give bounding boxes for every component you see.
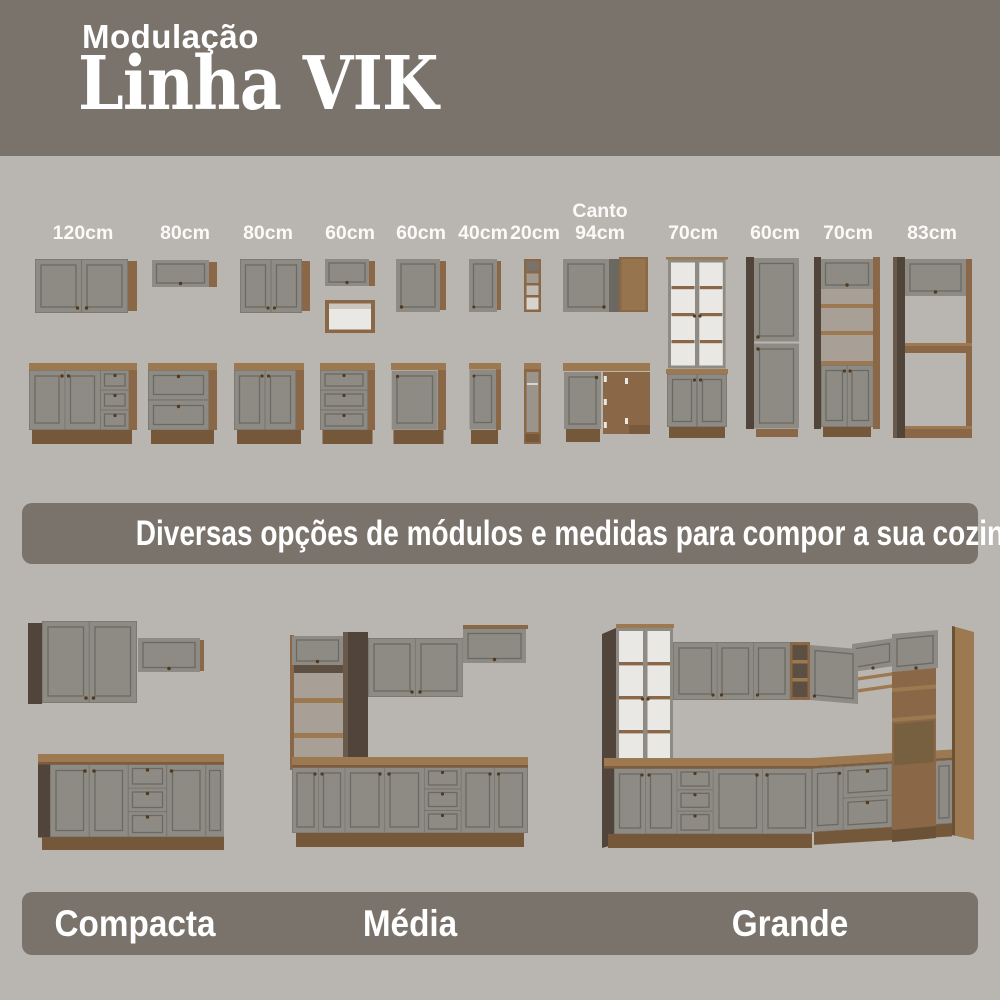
module-80cm-drawer-base-illustration xyxy=(148,363,217,444)
module-83cm-open-tower-illustration xyxy=(893,257,972,438)
module-label-60cm-a: 60cm xyxy=(325,222,375,244)
module-120cm-base-cabinet-illustration xyxy=(29,363,137,444)
module-label-canto-94cm: Canto 94cm xyxy=(572,200,627,244)
module-60cm-wall-cabinet-illustration xyxy=(396,259,446,312)
page: Modulação Linha VIK 120cm 80cm 80cm 60cm… xyxy=(0,0,1000,1000)
module-label-20cm: 20cm xyxy=(510,222,560,244)
module-20cm-rail-base-illustration xyxy=(524,363,541,444)
module-80cm-flip-wall-cabinet-illustration xyxy=(152,260,217,288)
module-60cm-drawer-base-illustration xyxy=(320,363,375,444)
module-label-80cm-a: 80cm xyxy=(160,222,210,244)
kitchen-compacta-illustration xyxy=(28,615,252,855)
kitchen-media-illustration xyxy=(290,612,566,855)
layout-label-compacta: Compacta xyxy=(54,892,215,955)
layout-label-grande: Grande xyxy=(732,892,849,955)
kitchen-layouts-section xyxy=(0,565,1000,892)
module-label-60cm-c: 60cm xyxy=(750,222,800,244)
module-label-canto-prefix: Canto xyxy=(572,200,627,222)
module-60cm-flip-wall-cabinet-illustration xyxy=(325,259,375,287)
banner-text: Diversas opções de módulos e medidas par… xyxy=(136,503,1000,564)
kitchen-grande-illustration xyxy=(600,612,996,874)
module-label-83cm: 83cm xyxy=(907,222,957,244)
module-60cm-open-niche-illustration xyxy=(325,300,375,333)
module-70cm-glass-tall-cabinet-illustration xyxy=(666,257,728,438)
module-60cm-door-base-illustration xyxy=(391,363,446,444)
footer-band: Compacta Média Grande xyxy=(22,892,978,955)
module-20cm-shelf-wall-illustration xyxy=(524,259,541,312)
module-label-canto-size: 94cm xyxy=(572,222,627,244)
module-label-120cm: 120cm xyxy=(53,222,114,244)
module-60cm-pantry-tall-cabinet-illustration xyxy=(746,257,800,437)
modules-section: 120cm 80cm 80cm 60cm 60cm 40cm 20cm Cant… xyxy=(0,156,1000,490)
module-80cm-door-base-illustration xyxy=(234,363,304,444)
module-70cm-oven-tower-illustration xyxy=(814,257,880,437)
module-label-70cm-b: 70cm xyxy=(823,222,873,244)
module-40cm-wall-cabinet-illustration xyxy=(469,259,501,312)
banner: Diversas opções de módulos e medidas par… xyxy=(22,503,978,564)
module-40cm-base-cabinet-illustration xyxy=(469,363,501,444)
module-canto-94cm-base-illustration xyxy=(563,363,650,444)
layout-label-media: Média xyxy=(363,892,457,955)
module-label-40cm: 40cm xyxy=(458,222,508,244)
module-120cm-wall-cabinet-illustration xyxy=(35,259,137,313)
module-label-80cm-b: 80cm xyxy=(243,222,293,244)
module-80cm-wall-cabinet-illustration xyxy=(240,259,310,313)
page-title: Linha VIK xyxy=(78,46,438,124)
module-label-60cm-b: 60cm xyxy=(396,222,446,244)
module-label-70cm-a: 70cm xyxy=(668,222,718,244)
header-band: Modulação Linha VIK xyxy=(0,0,1000,156)
module-canto-94cm-wall-illustration xyxy=(563,257,648,312)
